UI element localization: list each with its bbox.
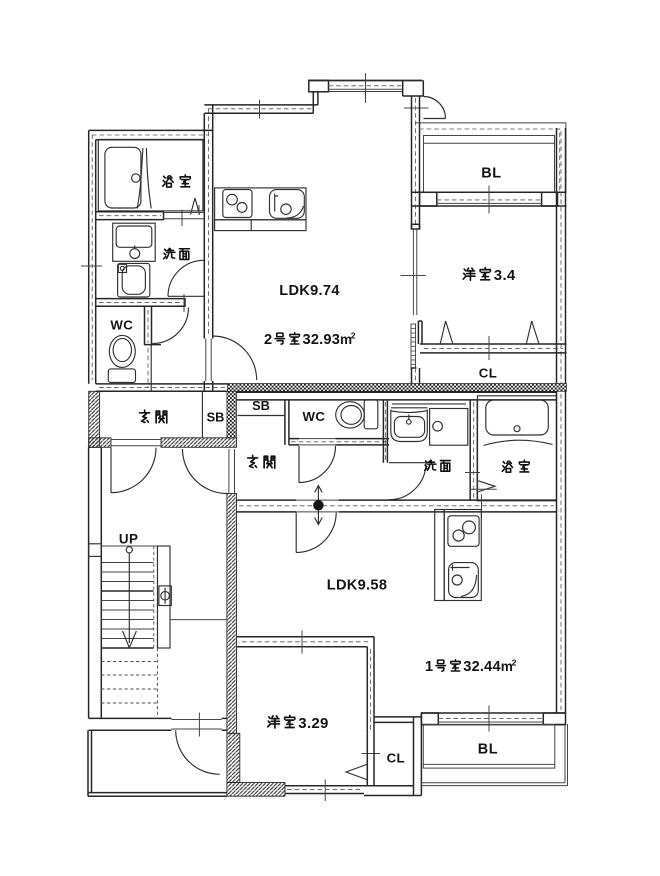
- svg-text:UP: UP: [119, 532, 138, 547]
- svg-text:CL: CL: [387, 751, 405, 766]
- svg-text:1: 1: [425, 659, 433, 675]
- svg-text:LDK9.58: LDK9.58: [327, 578, 388, 594]
- svg-text:BL: BL: [481, 166, 501, 182]
- svg-text:BL: BL: [478, 741, 498, 757]
- svg-text:2: 2: [264, 332, 272, 348]
- svg-text:2: 2: [512, 658, 517, 668]
- svg-text:WC: WC: [303, 409, 326, 424]
- svg-text:CL: CL: [479, 365, 497, 380]
- svg-text:SB: SB: [252, 398, 270, 413]
- svg-text:LDK9.74: LDK9.74: [279, 283, 340, 299]
- svg-text:3.29: 3.29: [298, 715, 328, 732]
- svg-text:SB: SB: [207, 410, 225, 425]
- svg-text:2: 2: [351, 331, 356, 341]
- svg-text:32.44: 32.44: [463, 659, 501, 675]
- svg-text:32.93: 32.93: [303, 332, 341, 348]
- svg-text:WC: WC: [110, 317, 133, 332]
- svg-text:3.4: 3.4: [494, 267, 516, 284]
